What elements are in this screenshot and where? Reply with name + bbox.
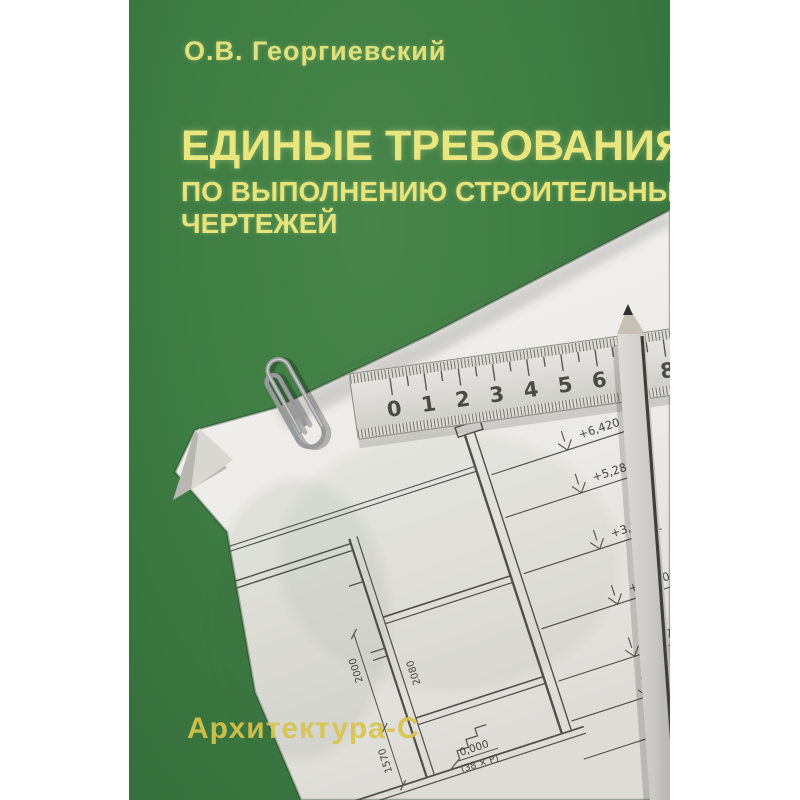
book-title-line1: ЕДИНЫЕ ТРЕБОВАНИЯ: [181, 122, 670, 171]
dimension-label: 2800: [180, 627, 198, 655]
book-title-line2: ПО ВЫПОЛНЕНИЮ СТРОИТЕЛЬНЫХ: [181, 176, 670, 208]
book-title-line3: ЧЕРТЕЖЕЙ: [181, 208, 338, 240]
book-cover-photo: { "cover": { "author": "О.В. Георгиевски…: [0, 0, 800, 800]
dimension-label: 380: [233, 790, 249, 800]
publisher-name: Архитектура-С: [187, 712, 420, 746]
author-name: О.В. Георгиевский: [184, 36, 446, 67]
cover-photo-montage: +6,420 +5,280 +3,780 +2,720 +0,780 -0,01…: [129, 0, 670, 800]
book-cover: О.В. Георгиевский ЕДИНЫЕ ТРЕБОВАНИЯ ПО В…: [129, 0, 670, 800]
